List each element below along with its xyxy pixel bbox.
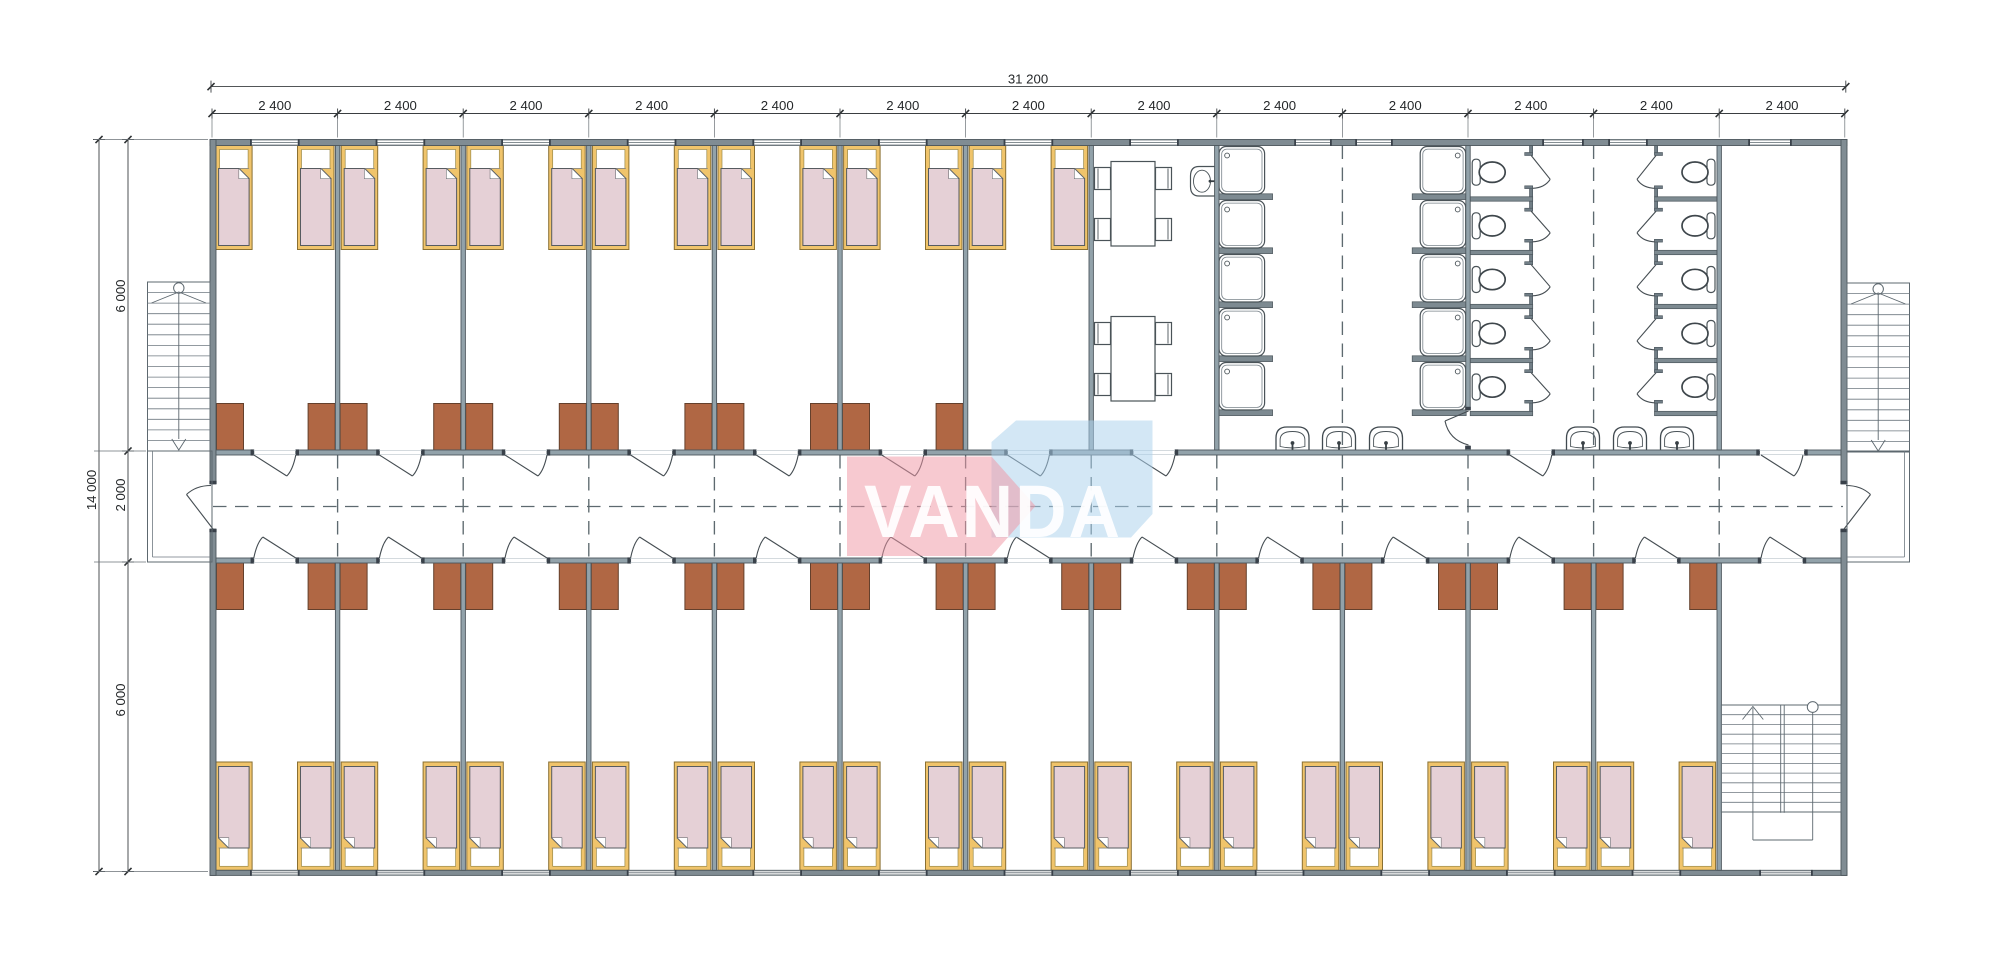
svg-text:14 000: 14 000 (84, 470, 99, 510)
svg-text:2 400: 2 400 (1765, 98, 1798, 113)
svg-text:2 400: 2 400 (1263, 98, 1296, 113)
svg-text:VANDA: VANDA (864, 470, 1122, 553)
svg-text:2 400: 2 400 (1514, 98, 1547, 113)
svg-text:2 400: 2 400 (258, 98, 291, 113)
svg-text:2 400: 2 400 (1012, 98, 1045, 113)
svg-text:2 400: 2 400 (1137, 98, 1170, 113)
svg-text:2 400: 2 400 (635, 98, 668, 113)
svg-text:2 400: 2 400 (1640, 98, 1673, 113)
svg-text:2 400: 2 400 (886, 98, 919, 113)
svg-text:2 400: 2 400 (1389, 98, 1422, 113)
svg-text:2 400: 2 400 (384, 98, 417, 113)
svg-text:2 400: 2 400 (761, 98, 794, 113)
svg-text:6 000: 6 000 (113, 683, 128, 716)
svg-text:2 400: 2 400 (509, 98, 542, 113)
svg-text:2 000: 2 000 (113, 478, 128, 511)
svg-text:6 000: 6 000 (113, 279, 128, 312)
svg-text:31 200: 31 200 (1008, 72, 1048, 87)
